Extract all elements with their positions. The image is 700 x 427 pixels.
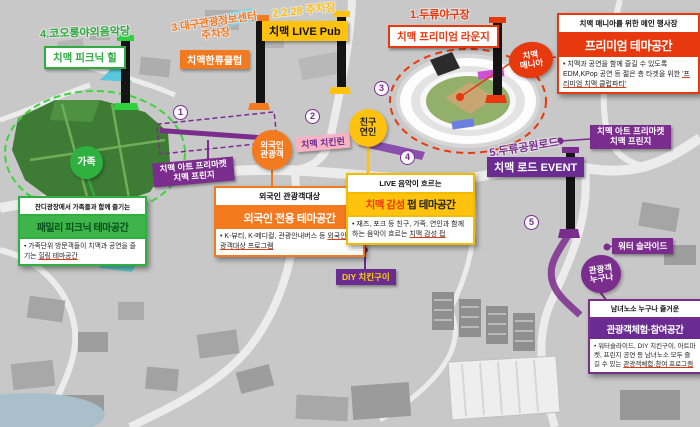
panel-header: 남녀노소 누구나 즐거운 [590,301,700,319]
foreigner-theme-panel: 외국인 관광객대상 외국인 전용 테마공간 • K-뷰티, K-메디컬, 관광안… [214,186,365,257]
panel-title: 패밀리 피크닉 테마공간 [20,216,145,237]
panel-body: • K-뷰티, K-메디컬, 관광안내버스 등 외국인 관광객대상 프로그램 [216,229,363,255]
map-marker-1: 1 [173,105,188,120]
panel-header: 치맥 매니아를 위한 메인 행사장 [559,15,698,34]
water-slide-label: 워터 슬라이드 [612,238,673,254]
panel-title: 관광객체험·참여공간 [590,319,700,339]
family-picnic-panel: 잔디광장에서 가족들과 함께 즐기는 패밀리 피크닉 테마공간 • 가족단위 방… [18,196,147,266]
panel-title: 외국인 전용 테마공간 [216,207,363,229]
diy-chicken-label: DIY 치킨구이 [336,269,396,285]
family-circle: 가족 [70,146,103,179]
panel-header: LIVE 음악이 흐르는 [348,175,473,194]
experience-participation-panel: 남녀노소 누구나 즐거운 관광객체험·참여공간 • 워터슬라이드, DIY 치킨… [588,299,700,374]
emotional-pub-panel: LIVE 음악이 흐르는 치맥 감성 펍 테마공간 • 재즈, 포크 등 친구,… [346,173,475,245]
premium-lounge-label: 치맥 프리미엄 라운지 [388,25,499,48]
festival-map: 4.코오롱야외음악당 3.대구관광정보센터 주차장 2.2.28 주차장 1.두… [0,0,700,427]
foreign-tourist-circle: 외국인 관광객 [252,130,292,170]
hallyu-club-label: 치맥한류클럽 [180,50,249,69]
map-marker-3: 3 [374,81,389,96]
panel-header: 외국인 관광객대상 [216,188,363,207]
map-marker-4: 4 [400,150,415,165]
panel-body: • 워터슬라이드, DIY 치킨구이, 아트마켓, 프린지 공연 등 남녀노소 … [590,339,700,372]
map-marker-2: 2 [305,109,320,124]
art-market-label-right: 치맥 아트 프리마켓 치맥 프린지 [590,125,671,149]
panel-body: • 가족단위 방문객들이 치맥과 공연을 즐기는 힐링 테마공간 [20,237,145,264]
venue-label-4: 4.코오롱야외음악당 [40,22,131,41]
panel-title: 프리미엄 테마공간 [559,34,698,57]
panel-body: • 치맥과 공연을 함께 즐길 수 있도록 EDM,KPop 공연 등 젊은 층… [559,57,698,92]
friends-lovers-circle: 친구 연인 [349,109,387,147]
road-event-label: 치맥 로드 EVENT [487,157,584,177]
venue-label-1: 1.두류야구장 [410,6,470,22]
map-marker-5: 5 [524,215,539,230]
panel-header: 잔디광장에서 가족들과 함께 즐기는 [20,198,145,216]
premium-theme-panel: 치맥 매니아를 위한 메인 행사장 프리미엄 테마공간 • 치맥과 공연을 함께… [557,13,700,94]
panel-title: 치맥 감성 펍 테마공간 [348,194,473,215]
panel-body: • 재즈, 포크 등 친구, 가족, 연인과 함께하는 음악이 흐르는 치맥 감… [348,215,473,243]
picnic-hill-label: 치맥 피크닉 힐 [44,46,126,69]
live-pub-label: 치맥 LIVE Pub [262,21,348,41]
